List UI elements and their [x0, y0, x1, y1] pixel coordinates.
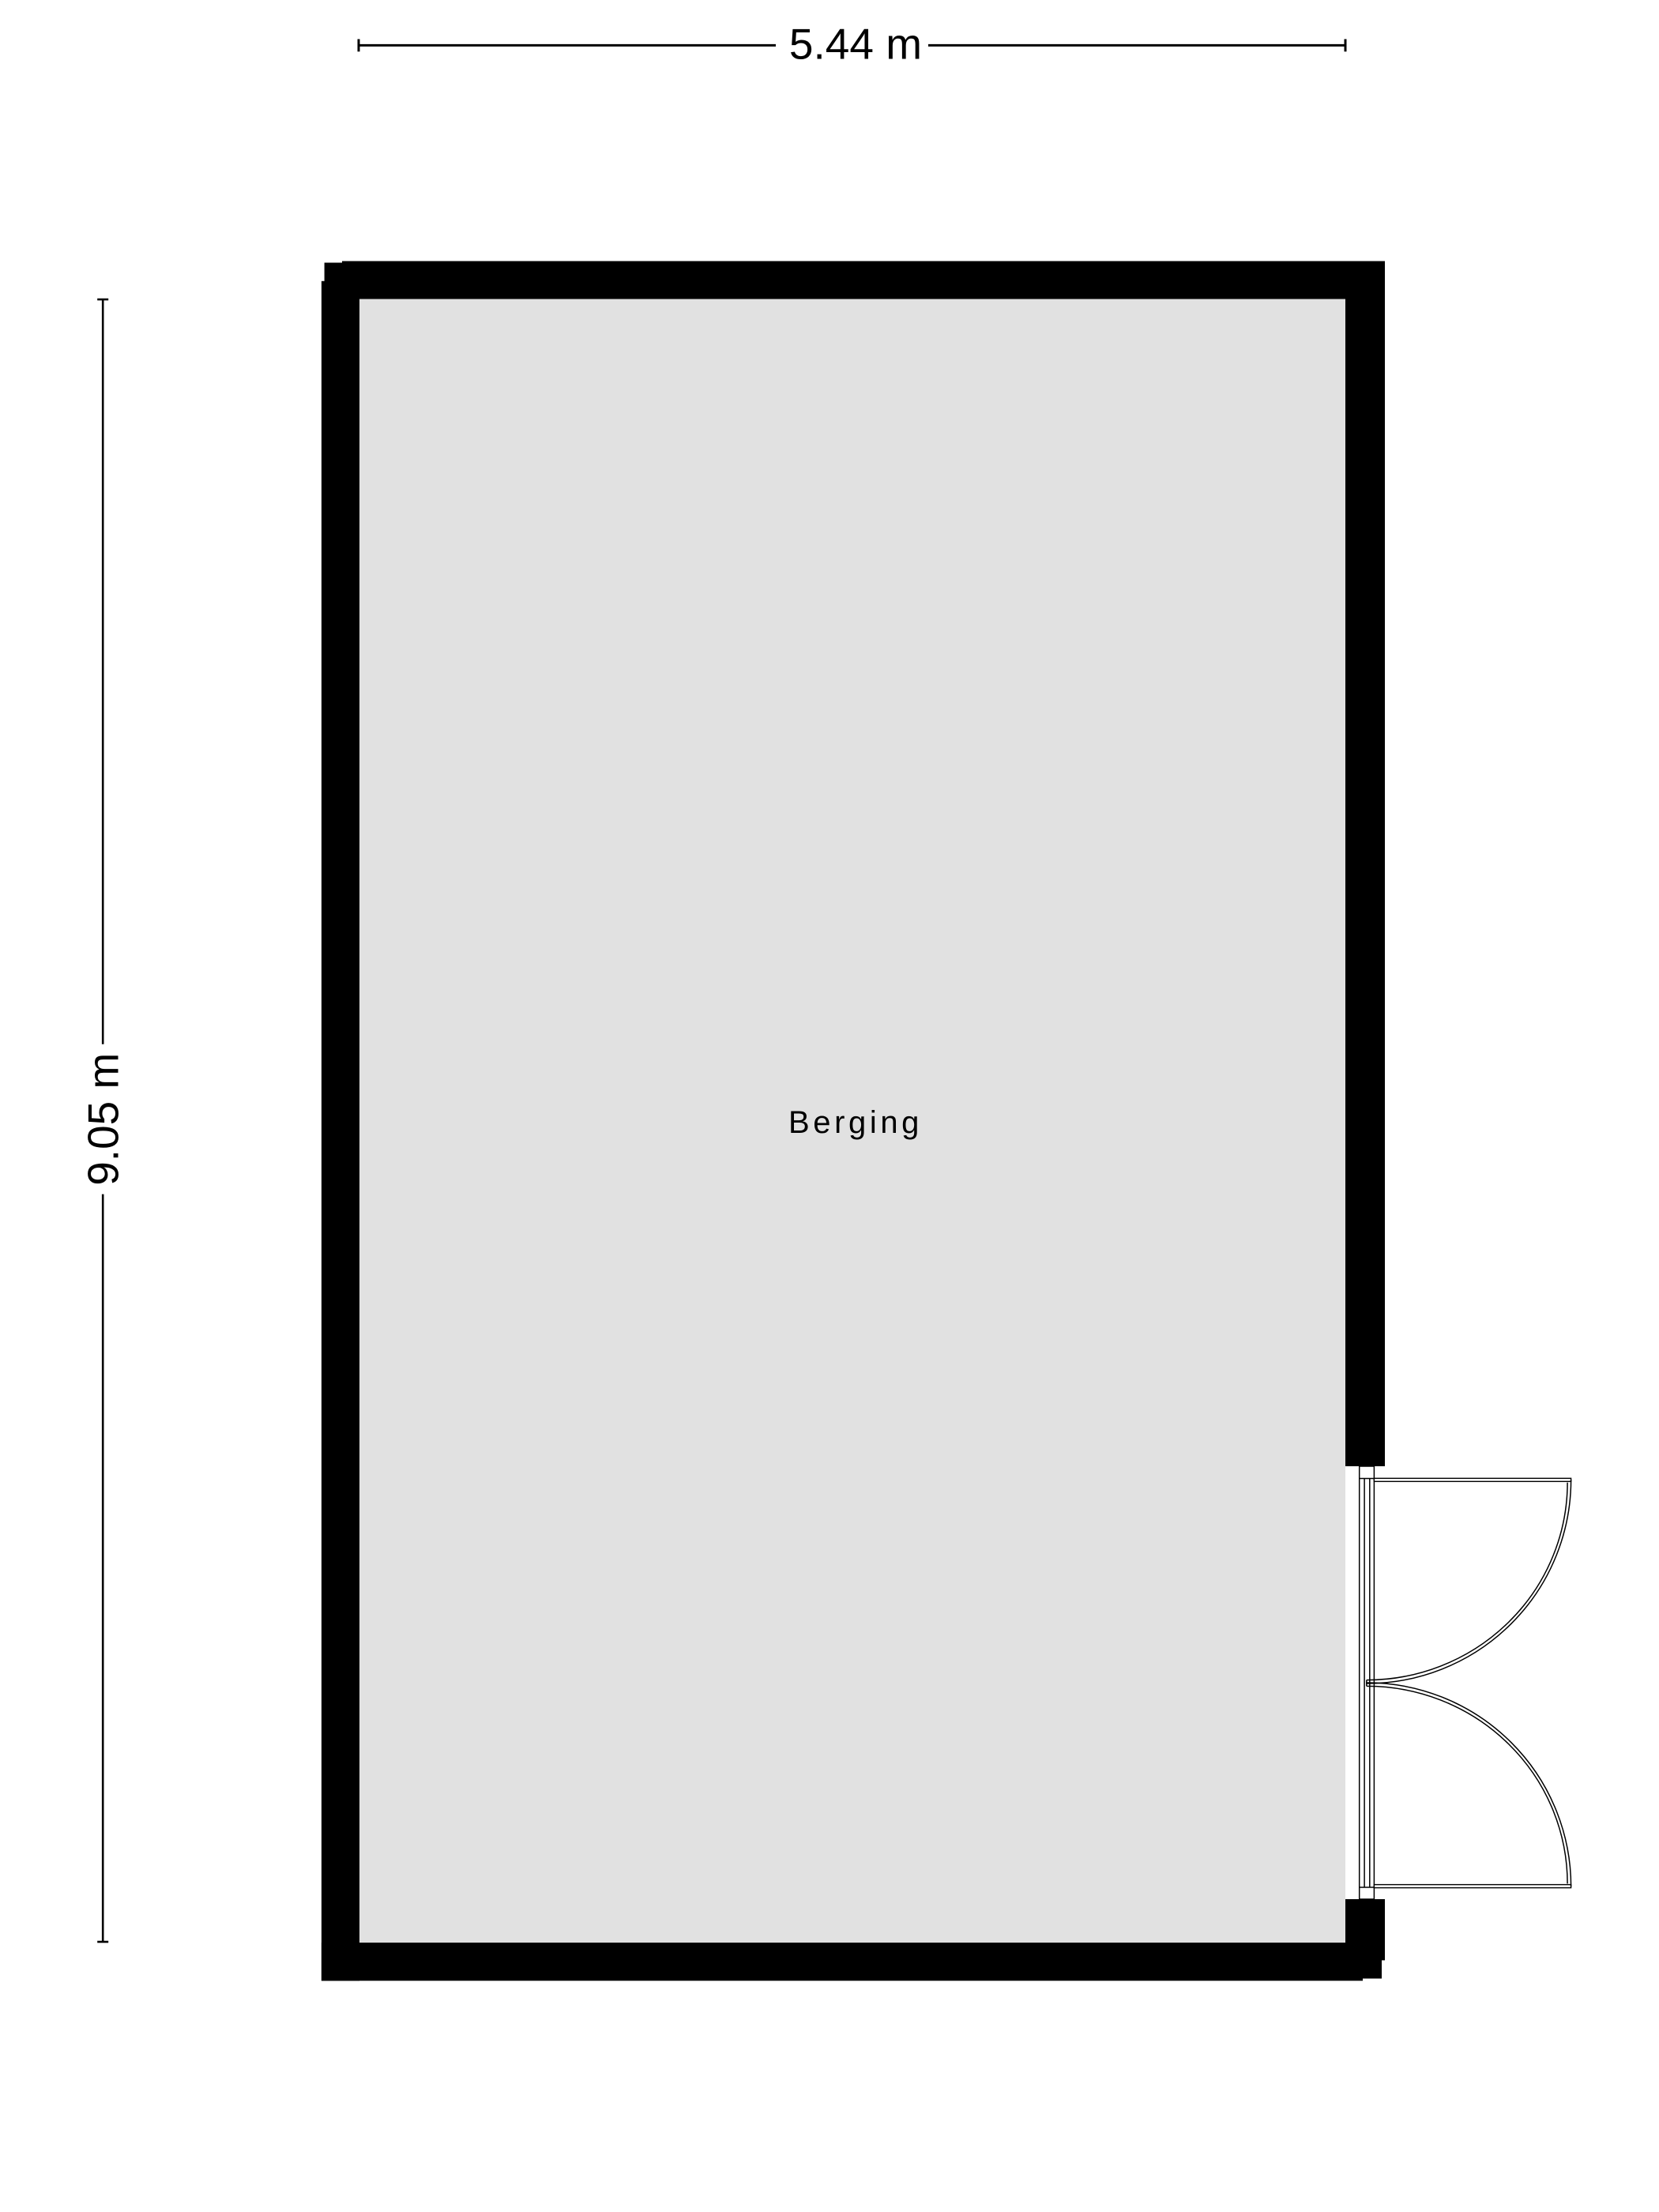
- svg-text:Berging: Berging: [788, 1105, 923, 1140]
- svg-text:9.05 m: 9.05 m: [79, 1053, 128, 1186]
- svg-text:5.44 m: 5.44 m: [789, 20, 922, 69]
